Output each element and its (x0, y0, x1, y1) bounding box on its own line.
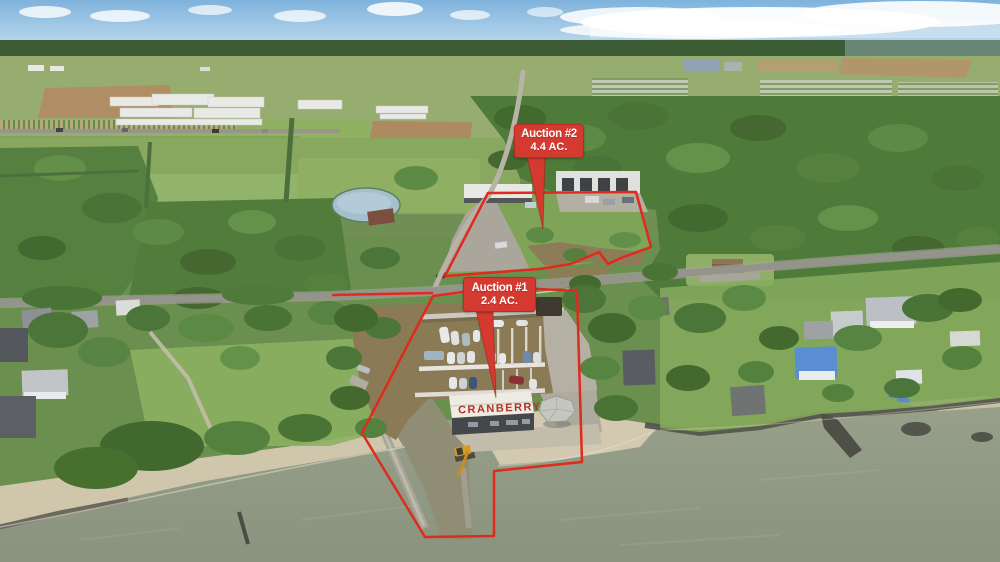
auction-1-title: Auction #1 (472, 282, 528, 295)
auction-2-label: Auction #2 4.4 AC. (514, 124, 584, 158)
blue-roof-house (794, 346, 837, 380)
culvert (536, 297, 562, 316)
auction-1-label: Auction #1 2.4 AC. (463, 277, 536, 312)
auction-2-title: Auction #2 (521, 128, 577, 141)
aerial-photo-auction-listing: CRANBERRY (0, 0, 1000, 562)
shore-deck (730, 385, 766, 416)
auction-1-acreage: 2.4 AC. (481, 295, 518, 307)
auction-2-acreage: 4.4 AC. (531, 141, 568, 153)
gazebo (539, 396, 575, 428)
